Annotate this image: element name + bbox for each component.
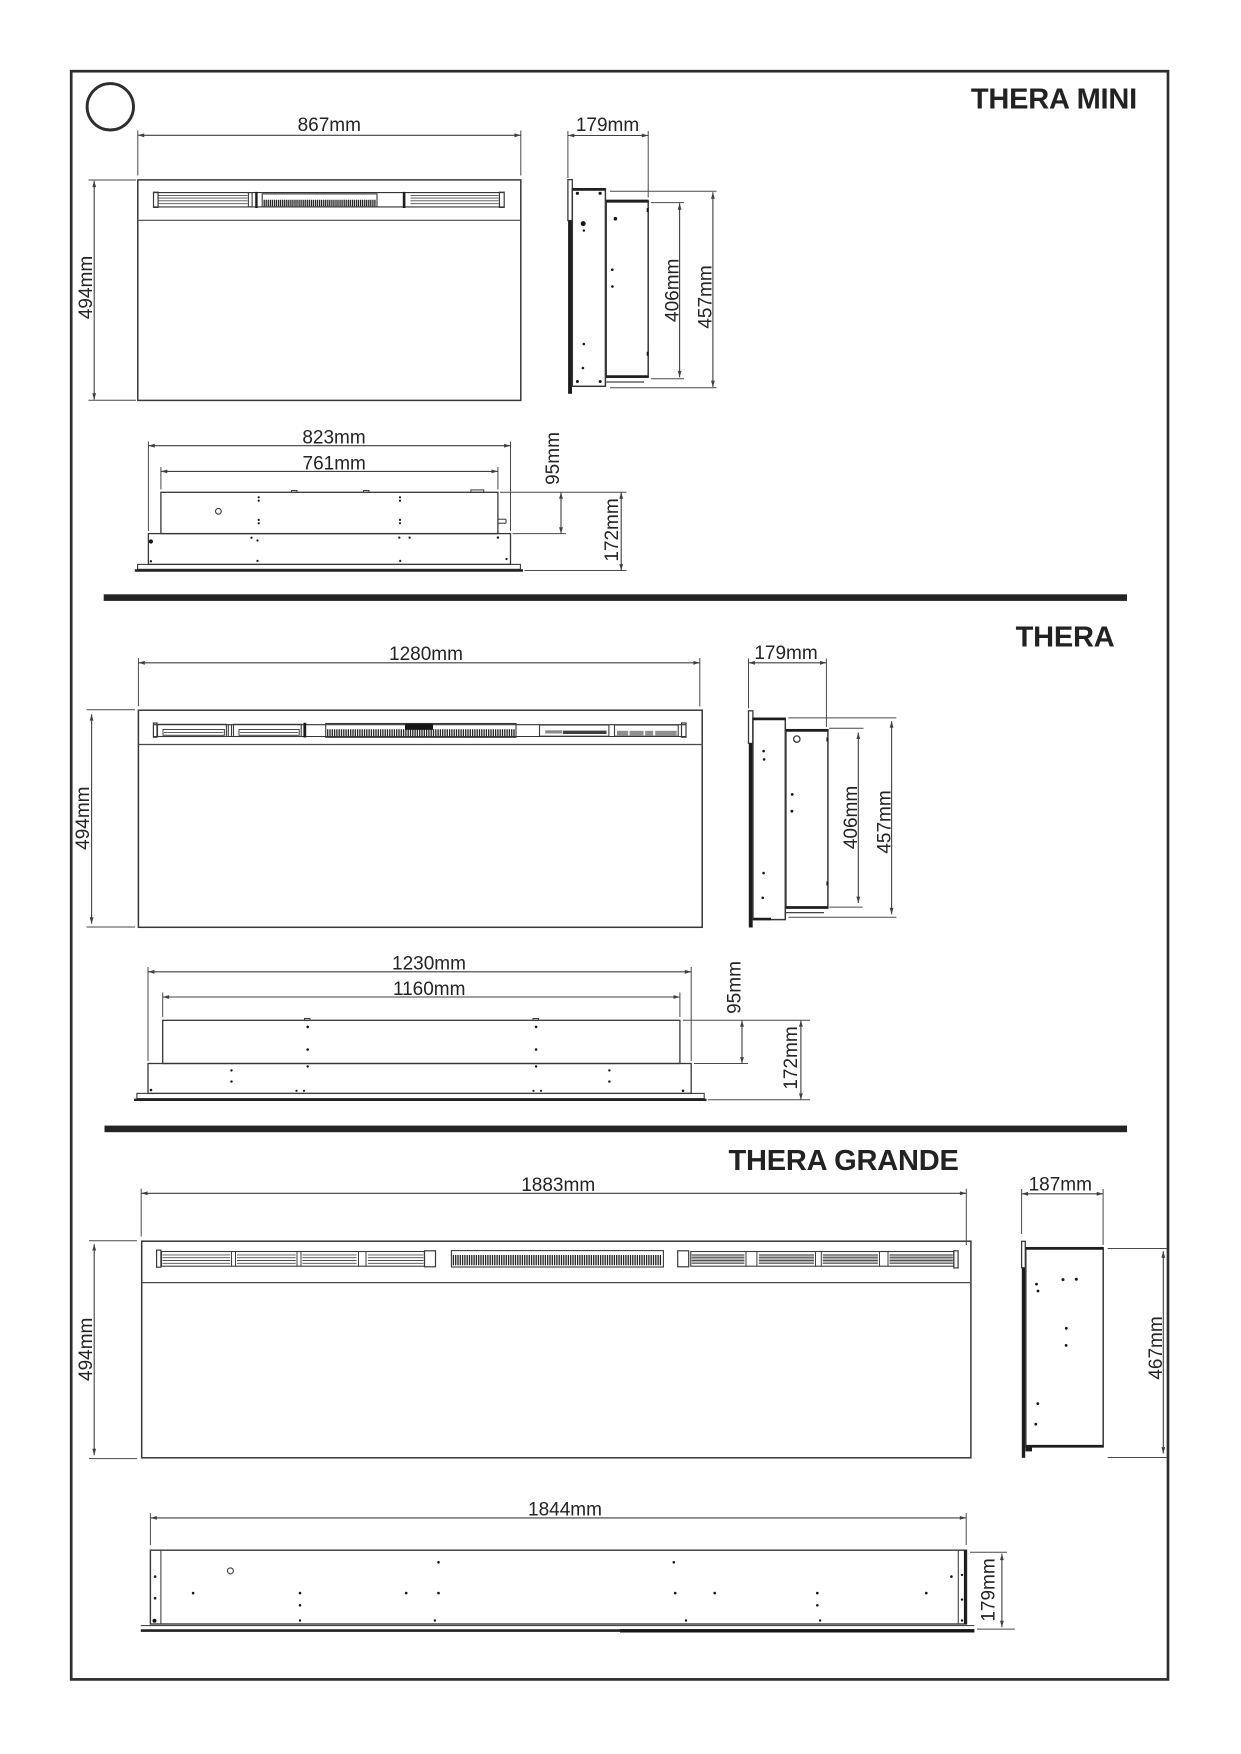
svg-text:172mm: 172mm: [781, 1026, 802, 1089]
svg-text:1230mm: 1230mm: [392, 953, 466, 974]
svg-text:406mm: 406mm: [662, 259, 683, 322]
svg-text:494mm: 494mm: [76, 256, 97, 319]
svg-text:179mm: 179mm: [754, 643, 817, 664]
svg-text:761mm: 761mm: [303, 453, 366, 474]
svg-text:95mm: 95mm: [725, 961, 746, 1014]
svg-text:172mm: 172mm: [602, 498, 623, 561]
svg-text:179mm: 179mm: [576, 115, 639, 136]
svg-text:1160mm: 1160mm: [393, 979, 466, 1000]
svg-text:457mm: 457mm: [874, 790, 895, 853]
svg-text:494mm: 494mm: [73, 787, 94, 850]
svg-text:1280mm: 1280mm: [389, 644, 463, 665]
svg-text:467mm: 467mm: [1146, 1316, 1167, 1379]
svg-text:179mm: 179mm: [979, 1558, 1000, 1621]
svg-text:95mm: 95mm: [543, 432, 564, 485]
svg-text:406mm: 406mm: [841, 786, 862, 849]
svg-text:THERA MINI: THERA MINI: [971, 83, 1137, 115]
svg-text:823mm: 823mm: [302, 428, 365, 449]
svg-text:867mm: 867mm: [298, 115, 361, 136]
svg-text:457mm: 457mm: [696, 265, 717, 328]
svg-text:187mm: 187mm: [1029, 1175, 1092, 1196]
svg-text:1844mm: 1844mm: [528, 1500, 602, 1521]
svg-text:THERA GRANDE: THERA GRANDE: [728, 1145, 958, 1177]
svg-text:1883mm: 1883mm: [521, 1175, 595, 1196]
svg-text:THERA: THERA: [1016, 621, 1115, 653]
svg-text:494mm: 494mm: [76, 1318, 97, 1381]
